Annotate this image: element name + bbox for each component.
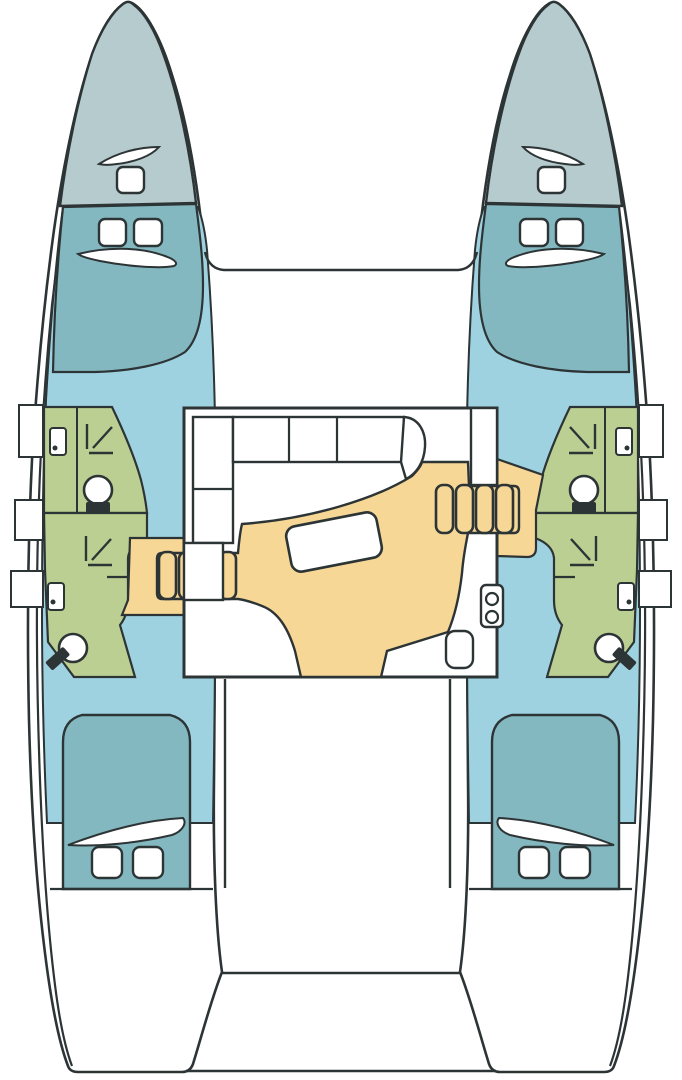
catamaran-floor-plan bbox=[0, 0, 682, 1080]
step bbox=[476, 485, 493, 533]
stove-burner bbox=[486, 593, 498, 605]
salon-cabinet bbox=[184, 543, 223, 600]
sofa-back-section bbox=[233, 417, 404, 462]
nav-station-cabinet bbox=[471, 408, 497, 485]
step bbox=[159, 552, 176, 599]
step bbox=[456, 485, 473, 533]
foredeck-crossbeam bbox=[205, 252, 477, 270]
step bbox=[496, 485, 513, 533]
sofa-side-section bbox=[193, 417, 233, 543]
galley-sink-icon bbox=[446, 631, 473, 668]
stove-burner bbox=[486, 611, 498, 623]
floor-plan-canvas bbox=[0, 0, 682, 1080]
step bbox=[436, 485, 453, 533]
